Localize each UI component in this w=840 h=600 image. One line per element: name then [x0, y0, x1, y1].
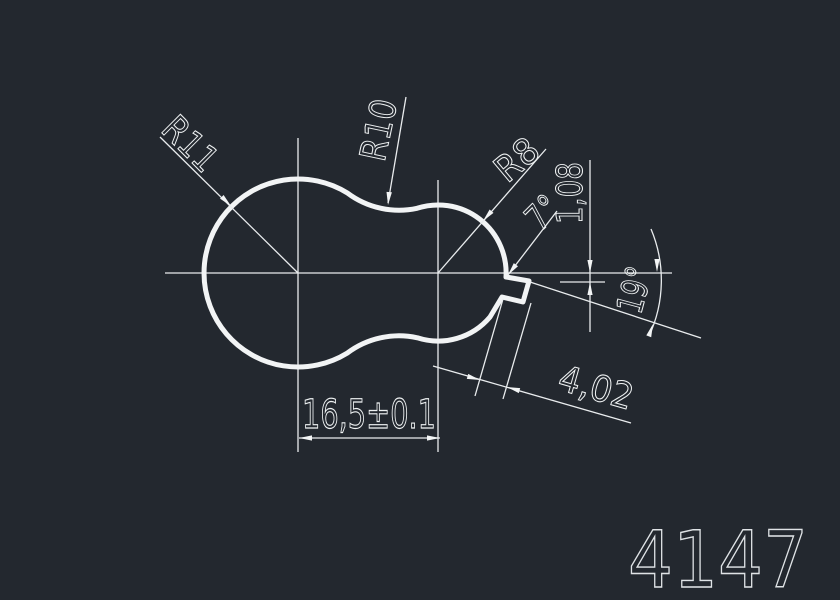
- angle-19-arrow-bottom-icon: [646, 324, 653, 337]
- label-angle-19: 19°: [610, 263, 662, 318]
- dim-1-08-arrow-bottom-icon: [587, 282, 592, 295]
- label-r8: R8: [487, 130, 549, 191]
- label-1-08: 1,08: [550, 162, 591, 224]
- label-4-02: 4,02: [554, 358, 638, 418]
- part-number: 4147: [628, 516, 808, 600]
- cad-drawing-canvas[interactable]: R11 R10 R8 7° 1,08 19° 4,02 16,5±0.1 414…: [0, 0, 840, 600]
- r11-arrowhead-icon: [220, 195, 231, 206]
- label-r10: R10: [353, 96, 406, 165]
- angle-19-arrow-top-icon: [654, 259, 659, 272]
- dim-4-02-extension-2: [503, 303, 531, 399]
- dim-4-02-arrow-right-icon: [507, 387, 520, 393]
- dim-1-08-arrow-top-icon: [587, 260, 592, 273]
- label-16-5: 16,5±0.1: [302, 392, 436, 438]
- dim-4-02-arrow-left-icon: [467, 374, 480, 380]
- technical-drawing: R11 R10 R8 7° 1,08 19° 4,02 16,5±0.1 414…: [0, 0, 840, 600]
- r10-arrowhead-icon: [387, 192, 392, 205]
- label-r11: R11: [153, 108, 226, 181]
